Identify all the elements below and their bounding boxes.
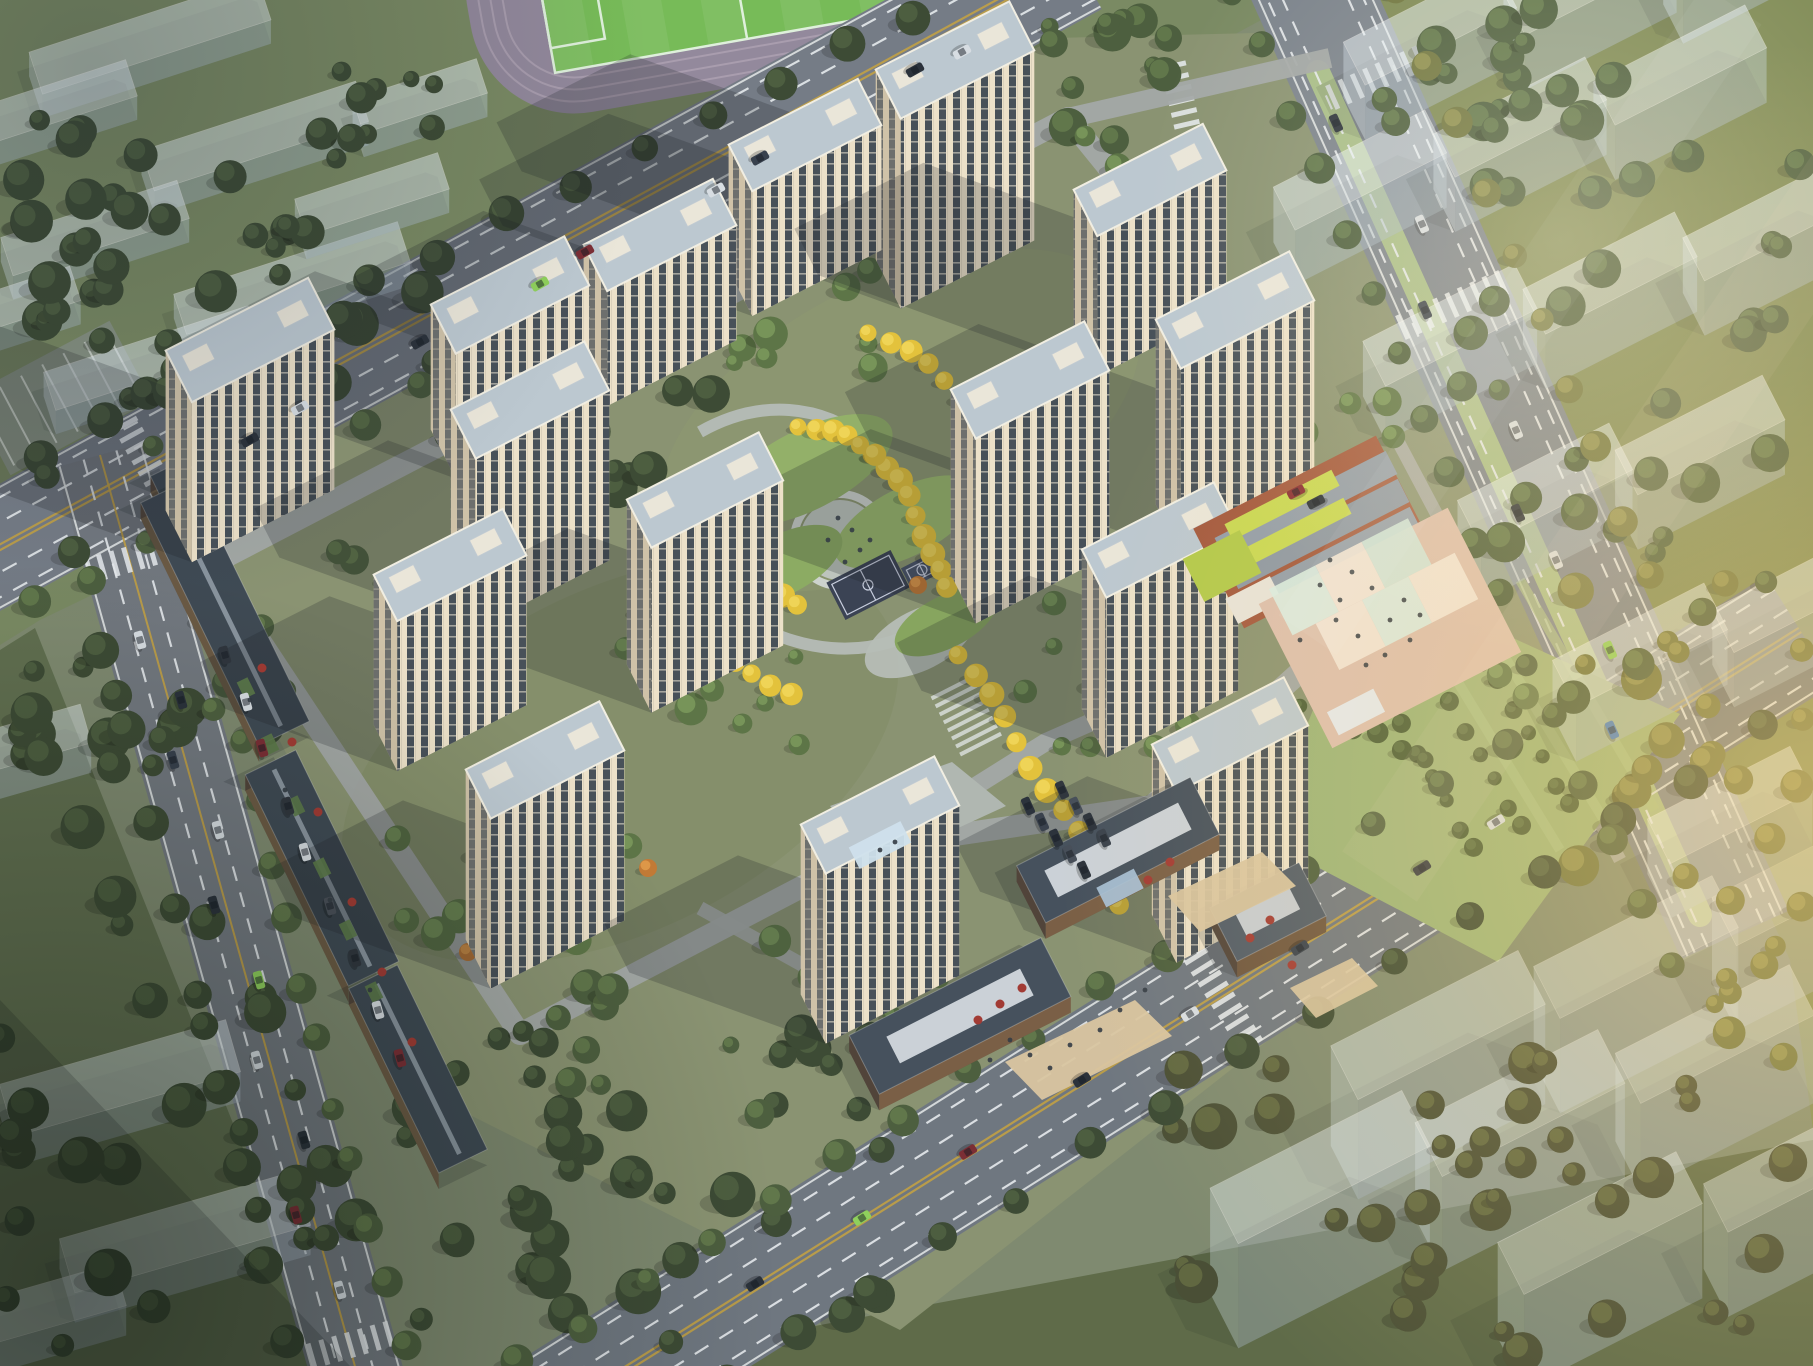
pedestrian [878,848,883,853]
pedestrian [850,528,855,533]
rendering-stage [0,0,1813,1366]
pedestrian [893,840,898,845]
pedestrian [1028,1053,1033,1058]
pedestrian [843,560,848,565]
pedestrian [1068,1043,1073,1048]
pedestrian [868,538,873,543]
aerial-masterplan-rendering [0,0,1813,1366]
pedestrian [836,516,841,521]
pedestrian [826,538,831,543]
red-umbrella [974,1016,983,1025]
pedestrian [988,1058,993,1063]
red-umbrella [996,1000,1005,1009]
pedestrian [858,548,863,553]
pedestrian [1008,1038,1013,1043]
red-umbrella [1018,984,1027,993]
pedestrian [1048,1066,1053,1071]
